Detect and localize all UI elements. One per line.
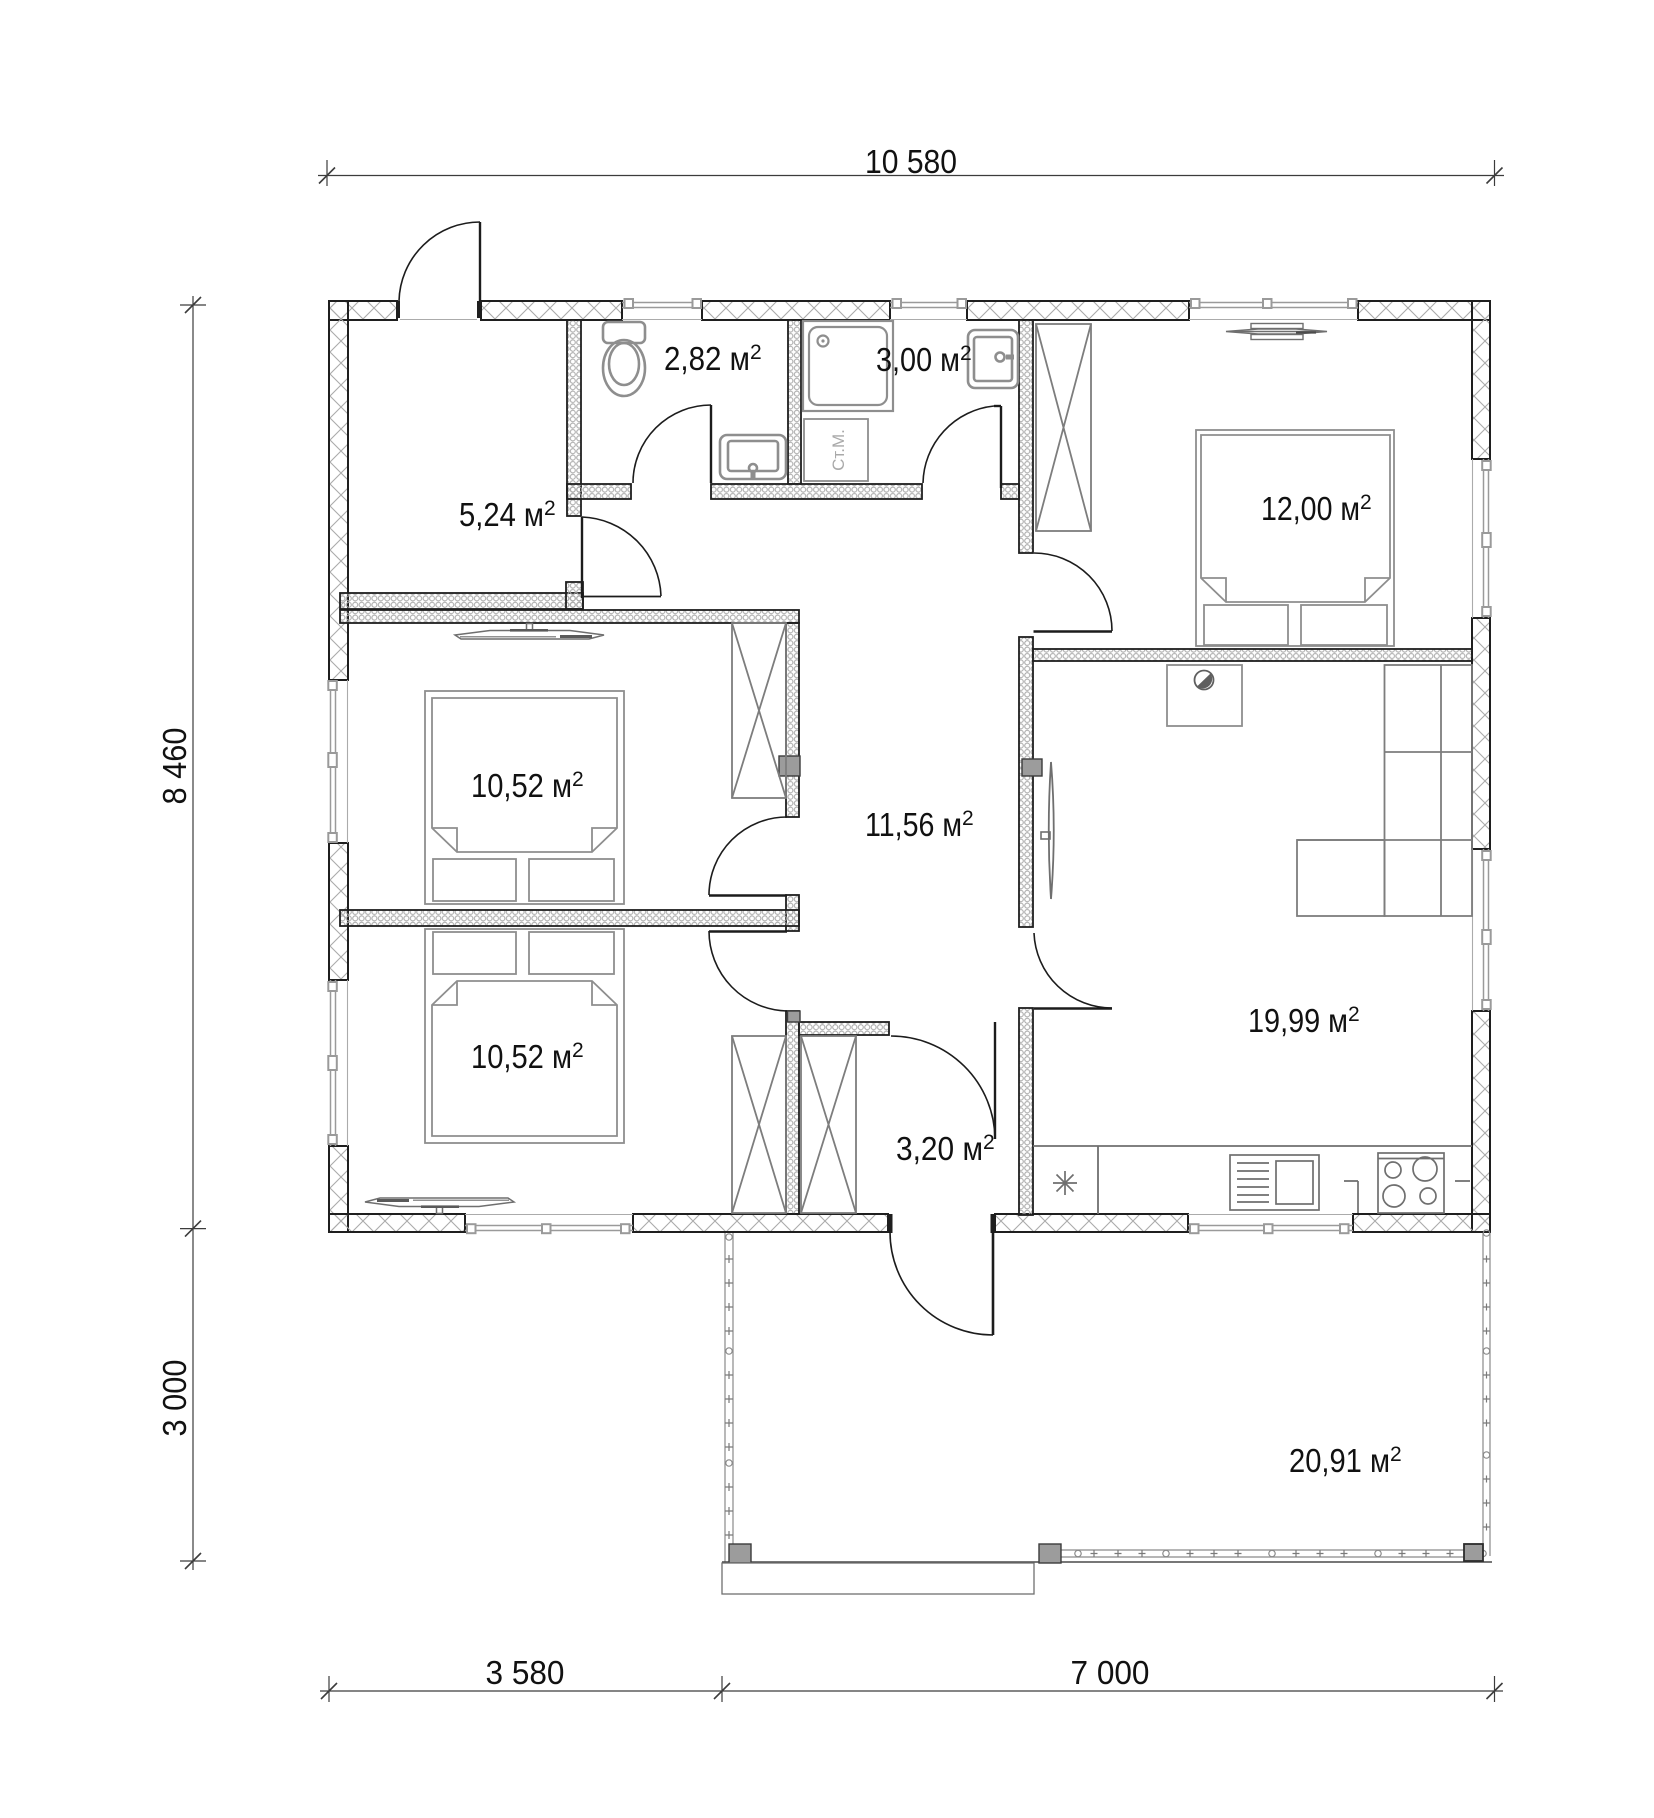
- svg-text:3 580: 3 580: [486, 1654, 565, 1691]
- svg-text:10,52 м2: 10,52 м2: [471, 1038, 584, 1075]
- svg-text:12,00 м2: 12,00 м2: [1261, 490, 1372, 527]
- svg-text:20,91 м2: 20,91 м2: [1289, 1442, 1402, 1479]
- svg-text:10 580: 10 580: [865, 143, 957, 180]
- svg-text:19,99 м2: 19,99 м2: [1248, 1002, 1360, 1039]
- svg-text:10,52 м2: 10,52 м2: [471, 767, 584, 804]
- svg-text:Ст.М.: Ст.М.: [829, 429, 848, 471]
- svg-text:8 460: 8 460: [156, 728, 193, 805]
- svg-text:5,24 м2: 5,24 м2: [459, 496, 556, 533]
- svg-text:3,00 м2: 3,00 м2: [876, 341, 972, 378]
- svg-text:7 000: 7 000: [1071, 1654, 1150, 1691]
- svg-text:2,82 м2: 2,82 м2: [664, 340, 762, 377]
- svg-text:11,56 м2: 11,56 м2: [865, 806, 974, 843]
- svg-text:3 000: 3 000: [156, 1360, 193, 1437]
- svg-text:3,20 м2: 3,20 м2: [896, 1130, 995, 1167]
